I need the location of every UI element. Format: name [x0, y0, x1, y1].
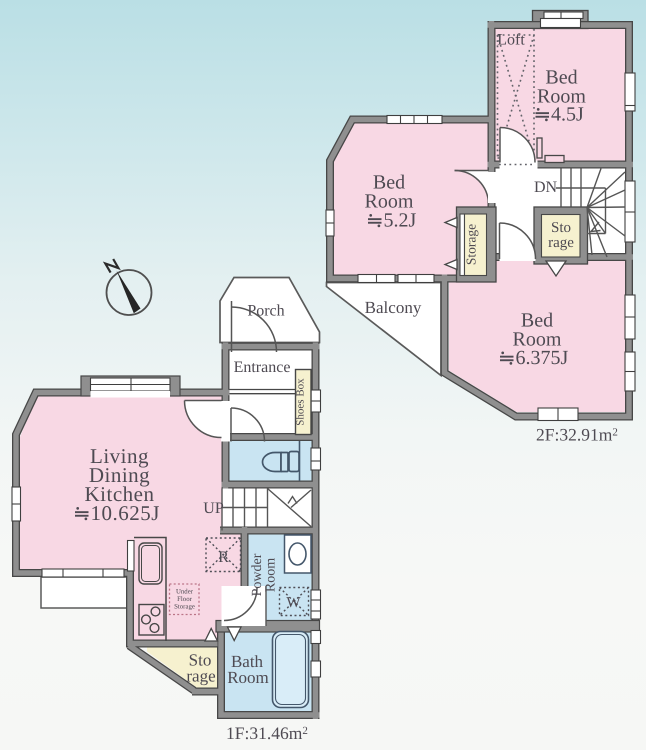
svg-text:Shoes Box: Shoes Box — [295, 378, 307, 426]
svg-text:Under: Under — [176, 589, 194, 596]
svg-text:rage: rage — [548, 235, 574, 251]
svg-text:R: R — [218, 549, 229, 566]
svg-text:Porch: Porch — [247, 303, 284, 320]
svg-text:Balcony: Balcony — [365, 298, 422, 317]
svg-text:5.2J: 5.2J — [384, 210, 417, 232]
svg-text:Loft: Loft — [497, 32, 525, 49]
svg-text:Floor: Floor — [177, 596, 192, 603]
svg-text:Storage: Storage — [174, 604, 195, 611]
svg-text:4.5J: 4.5J — [551, 104, 584, 126]
svg-text:UP: UP — [203, 500, 224, 517]
svg-text:2F:32.91m2: 2F:32.91m2 — [536, 425, 618, 445]
svg-text:Storage: Storage — [464, 224, 479, 265]
svg-text:Sto: Sto — [551, 220, 571, 236]
svg-text:Room: Room — [227, 668, 269, 687]
svg-text:10.625J: 10.625J — [91, 501, 160, 525]
svg-text:Room: Room — [264, 558, 279, 592]
svg-text:W: W — [286, 595, 301, 611]
svg-text:6.375J: 6.375J — [516, 347, 569, 369]
svg-text:Entrance: Entrance — [234, 359, 291, 376]
svg-text:1F:31.46m2: 1F:31.46m2 — [226, 723, 308, 743]
svg-text:DN: DN — [534, 179, 558, 196]
svg-text:rage: rage — [186, 667, 215, 686]
